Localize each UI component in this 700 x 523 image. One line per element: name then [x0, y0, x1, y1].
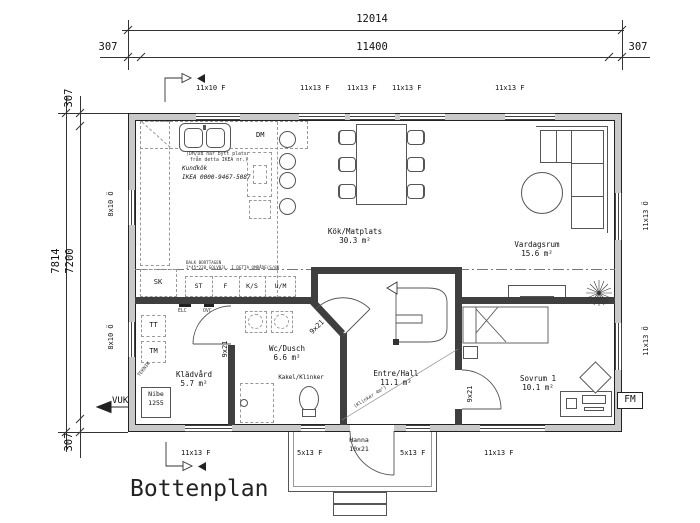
dining-chair	[338, 184, 356, 199]
drawing-title: Bottenplan	[130, 476, 268, 502]
sink-basin-left	[184, 128, 203, 148]
window-label-top-5: 11x13 F	[495, 84, 525, 92]
closet-label-sk: SK	[147, 278, 169, 286]
dim-line-inner-height	[80, 96, 81, 458]
ext-line-top-right	[622, 20, 623, 70]
ext-line-left-top	[58, 113, 128, 114]
toilet-tank	[302, 409, 316, 417]
entry-door-name: Hanna	[344, 437, 374, 444]
room-area-living: 15.6 m²	[505, 250, 569, 259]
window-bottom-3	[406, 425, 430, 432]
wall-wc-east	[340, 333, 347, 425]
dining-chair	[338, 130, 356, 145]
sink-basin-right	[206, 128, 225, 148]
window-right-1	[615, 193, 622, 240]
dining-chair	[407, 157, 425, 172]
entry-door-size: 10x21	[344, 446, 374, 453]
floor-drain	[240, 399, 248, 407]
window-left-2	[128, 322, 135, 357]
room-area-hall: 11.1 m²	[371, 379, 421, 388]
kitchen-swap-note-1: (DM/DB har bytt plats	[186, 152, 247, 158]
closet-label-um: U/M	[265, 283, 296, 290]
kitchen-counter-left	[140, 121, 170, 266]
kitchen-swap-note-2: från detta IKEA nr.)	[190, 158, 248, 164]
heatpump-label-2: 1255	[141, 400, 171, 407]
vuk-label: VUK	[112, 396, 128, 406]
dim-overall-height: 7814	[50, 241, 62, 281]
beam-note-line-2: 2*45*220 GOLVBJL. I DETTA OMRÅDE(S/88	[186, 266, 279, 271]
room-area-kitchen: 30.3 m²	[320, 237, 390, 246]
tm-label: TM	[141, 347, 166, 355]
bar-stool	[279, 172, 296, 189]
window-top-2	[299, 113, 345, 120]
wall-laundry-wc	[228, 345, 235, 425]
window-label-bottom-1: 11x13 F	[181, 449, 211, 457]
wall-hall-north	[311, 267, 462, 274]
dim-offset-bottom: 307	[63, 427, 75, 457]
window-bottom-1	[185, 425, 232, 432]
elc-label: ELC	[178, 309, 187, 315]
window-label-bottom-3: 5x13 F	[400, 449, 425, 457]
door-label-laundry: 9x21	[221, 331, 229, 367]
elc-panel-mark	[179, 304, 191, 307]
bar-stool	[279, 198, 296, 215]
window-label-right-1: 11x13 Ö	[642, 194, 650, 238]
window-label-top-3: 11x13 F	[347, 84, 377, 92]
dim-offset-top: 307	[63, 83, 75, 113]
closet-label-st: ST	[185, 283, 212, 290]
window-bottom-2	[301, 425, 325, 432]
closet-label-ks: K/S	[239, 283, 265, 290]
room-area-wc: 6.6 m²	[262, 354, 312, 363]
wc-floor-note: Kakel/Klinker	[273, 375, 329, 382]
dim-line-inner-width	[100, 57, 650, 58]
ext-line-top-left	[128, 20, 129, 70]
future-dryer-drum	[274, 314, 289, 329]
room-area-laundry: 5.7 m²	[172, 380, 216, 389]
dining-chair	[407, 184, 425, 199]
future-washer-drum	[248, 314, 263, 329]
dim-inner-height: 7200	[64, 241, 76, 281]
dm-label: DM	[256, 131, 264, 139]
dim-line-overall-width	[122, 30, 624, 31]
window-top-1	[196, 113, 240, 120]
window-label-top-2: 11x13 F	[300, 84, 330, 92]
sink-faucet	[203, 125, 206, 130]
kitchen-order-number: IKEA 0000-9467-5087	[182, 175, 251, 182]
ovc-panel-mark	[204, 304, 214, 307]
dim-offset-right: 307	[624, 41, 652, 53]
dim-offset-left: 307	[94, 41, 122, 53]
window-label-bottom-4: 11x13 F	[484, 449, 514, 457]
window-top-3	[350, 113, 395, 120]
dim-inner-width: 11400	[342, 41, 402, 53]
window-label-left-1: 8x10 Ö	[107, 184, 115, 224]
sofa-cushion-line	[572, 196, 603, 197]
sofa-cushion-line	[572, 163, 603, 164]
dining-chair	[407, 130, 425, 145]
sofa-cushion-line	[556, 131, 557, 162]
bar-counter-edge	[277, 122, 278, 298]
window-label-bottom-2: 5x13 F	[297, 449, 322, 457]
bedside-table	[463, 346, 478, 359]
window-top-4	[400, 113, 445, 120]
wall-living-bedroom	[462, 297, 615, 304]
window-top-5	[505, 113, 555, 120]
dining-table	[356, 124, 407, 205]
wall-hall-bedroom-upper	[455, 274, 462, 370]
bar-stool	[279, 131, 296, 148]
ovc-label: OVC	[203, 309, 212, 315]
desk-phone	[566, 398, 577, 409]
window-left-1	[128, 190, 135, 225]
sofa-right-section	[571, 130, 604, 229]
wall-hall-bedroom-lower	[455, 409, 462, 425]
heatpump-label-1: Nibe	[141, 391, 171, 398]
kitchen-island-stove	[253, 165, 267, 184]
bar-stool	[279, 153, 296, 170]
window-label-left-2: 8x10 Ö	[107, 317, 115, 357]
window-right-2	[615, 323, 622, 370]
closet-label-f: F	[212, 283, 239, 290]
coffee-table	[521, 172, 563, 214]
window-label-right-2: 11x13 Ö	[642, 319, 650, 363]
desk-monitor	[582, 395, 606, 404]
fm-label: FM	[617, 395, 643, 406]
window-label-top-1: 11x10 F	[196, 84, 226, 92]
kitchen-brand: Kundkök	[182, 166, 207, 173]
porch-step-2	[333, 504, 387, 516]
porch-step-1	[333, 492, 387, 504]
window-bottom-4	[480, 425, 545, 432]
desk-keyboard	[584, 407, 604, 411]
door-label-bedroom: 9x21	[466, 376, 474, 412]
dining-chair	[338, 157, 356, 172]
kitchen-island-lower	[249, 200, 271, 219]
tt-label: TT	[141, 321, 166, 329]
wall-kitchen-south	[135, 297, 318, 304]
dim-overall-width: 12014	[342, 13, 402, 25]
room-area-bedroom: 10.1 m²	[510, 384, 566, 393]
window-label-top-4: 11x13 F	[392, 84, 422, 92]
floor-plan: 12014 11400 307 307 7814 7200 307 307	[0, 0, 700, 523]
